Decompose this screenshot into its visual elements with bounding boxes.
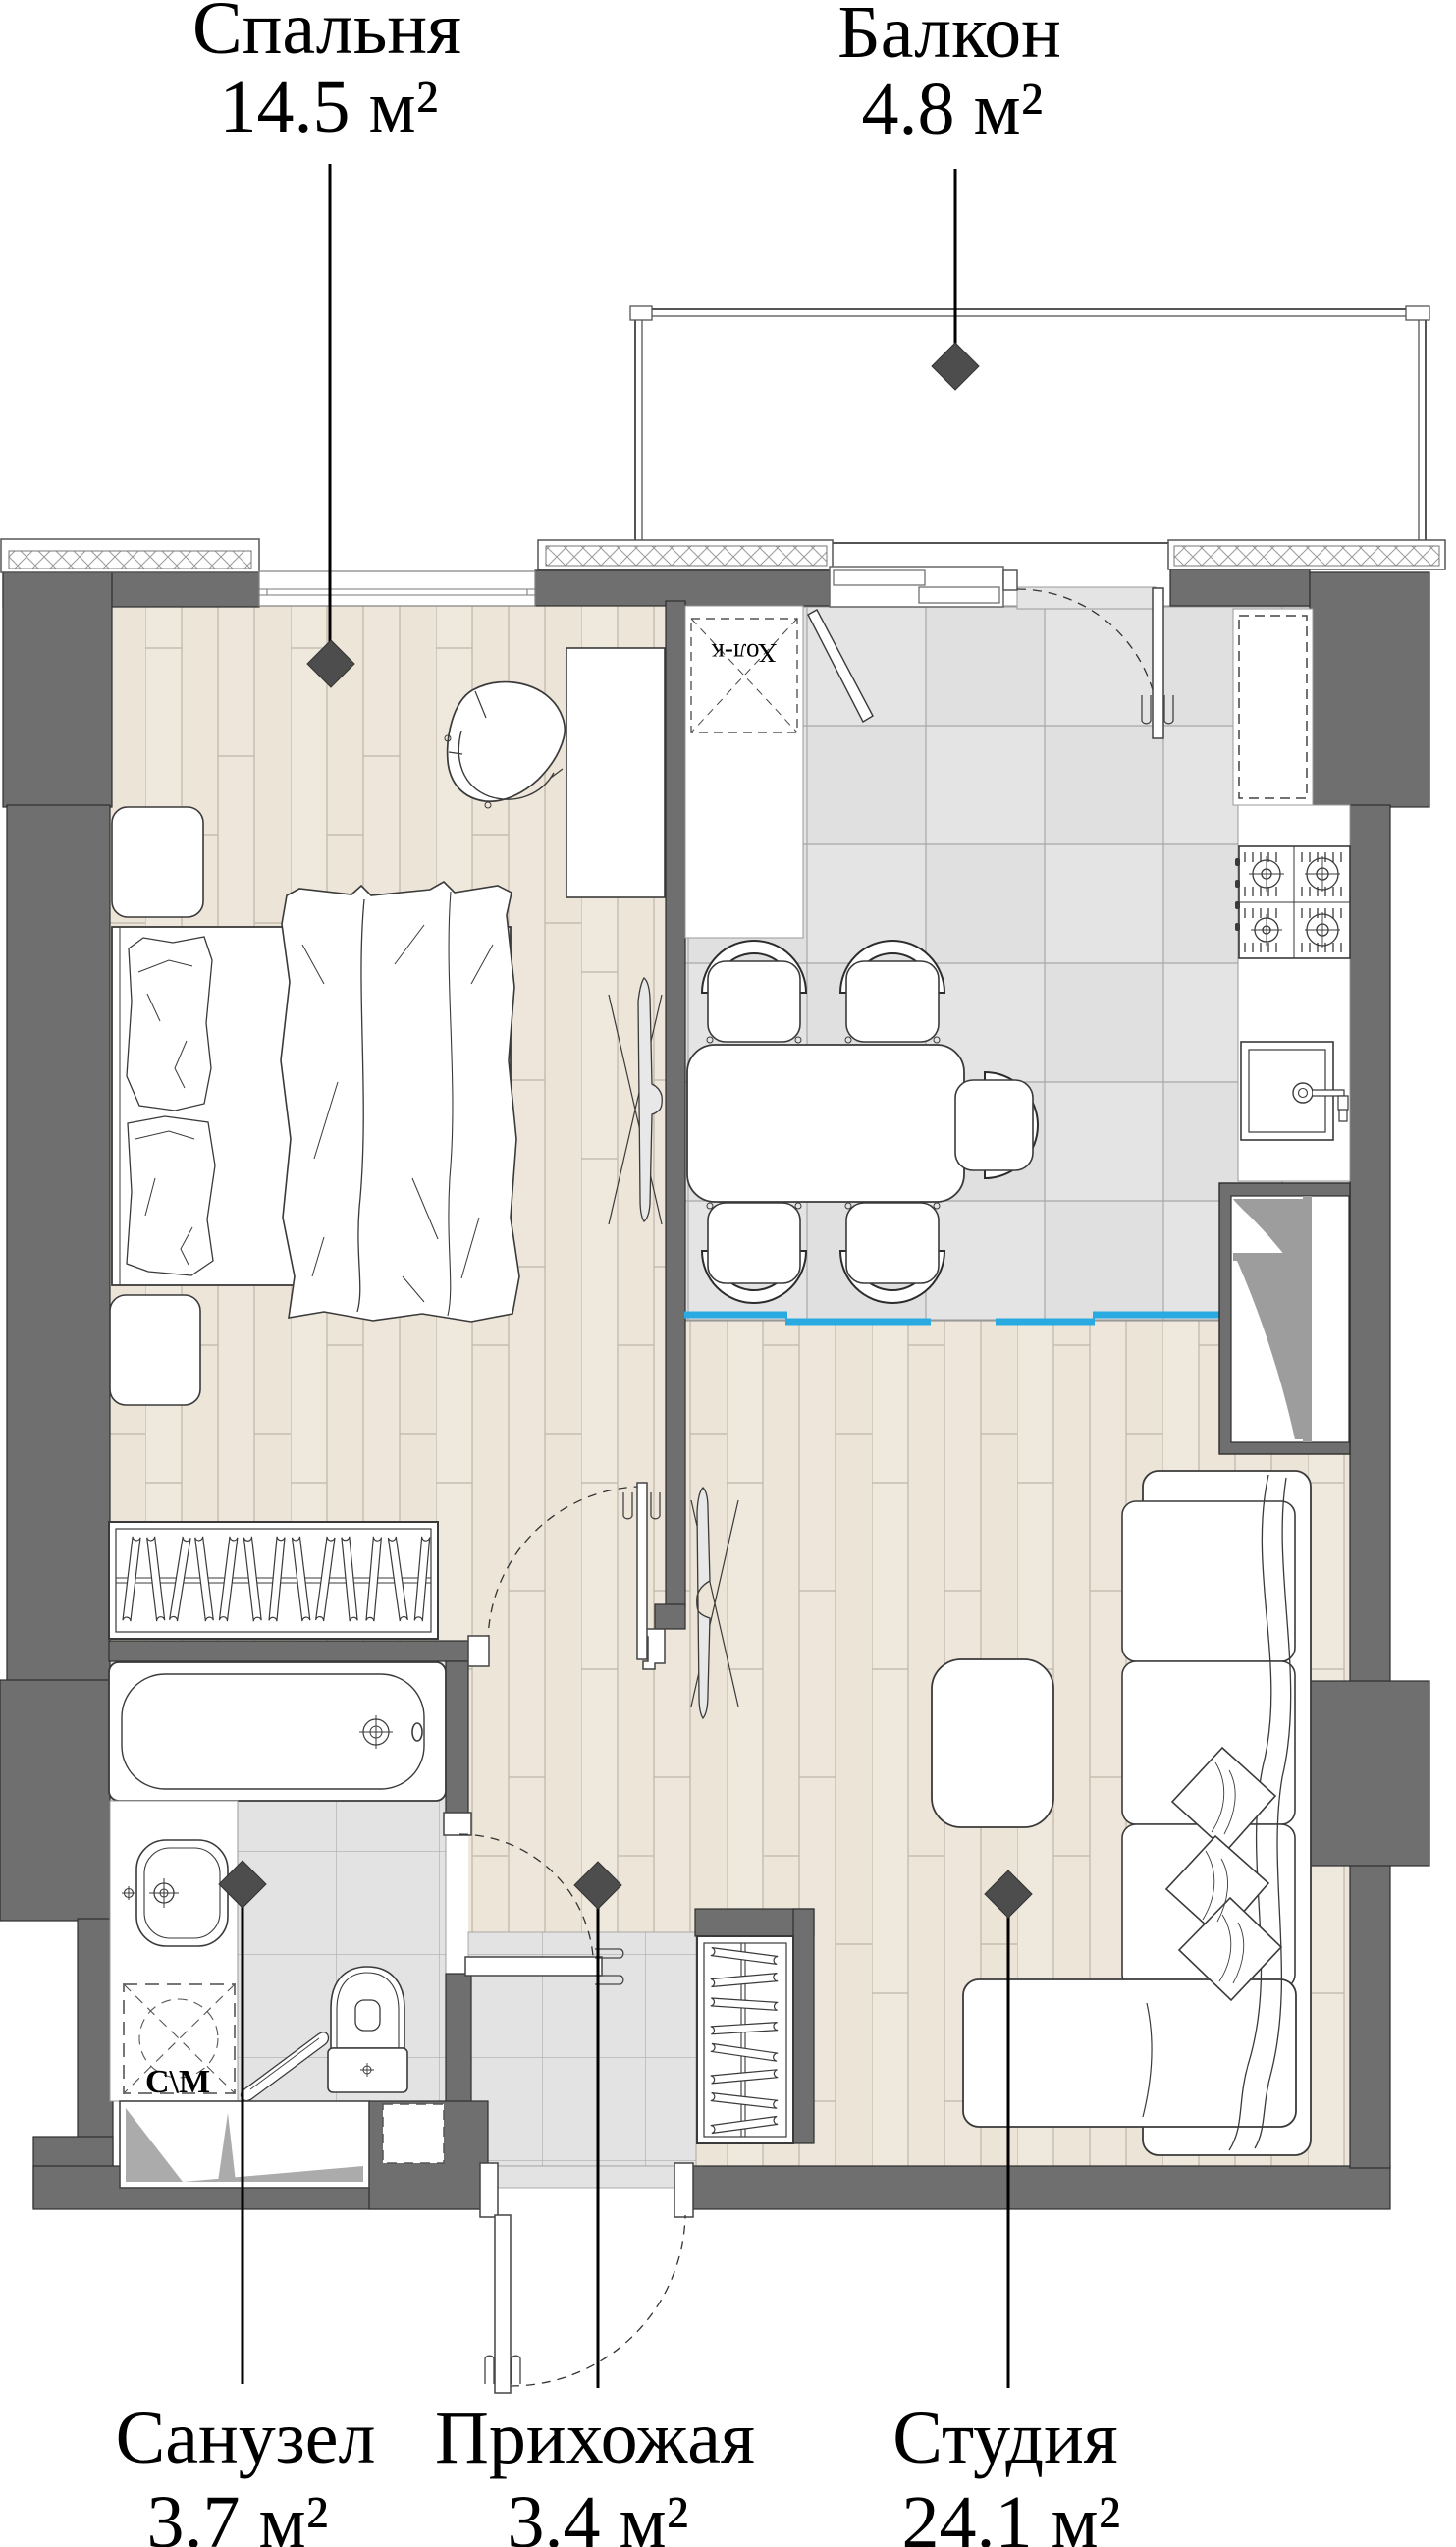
svg-text:С\М: С\М — [145, 2064, 210, 2100]
svg-text:4.8 м²: 4.8 м² — [862, 68, 1044, 150]
svg-text:Студия: Студия — [892, 2397, 1117, 2479]
svg-text:Прихожая: Прихожая — [435, 2397, 755, 2479]
svg-text:3.4 м²: 3.4 м² — [508, 2481, 689, 2547]
svg-text:Санузел: Санузел — [116, 2397, 376, 2479]
svg-text:24.1 м²: 24.1 м² — [902, 2481, 1121, 2547]
svg-text:Хол-к: Хол-к — [711, 638, 777, 668]
svg-text:Спальня: Спальня — [192, 0, 461, 70]
svg-text:14.5 м²: 14.5 м² — [220, 66, 439, 148]
svg-text:3.7 м²: 3.7 м² — [147, 2481, 329, 2547]
svg-text:Балкон: Балкон — [837, 0, 1061, 74]
